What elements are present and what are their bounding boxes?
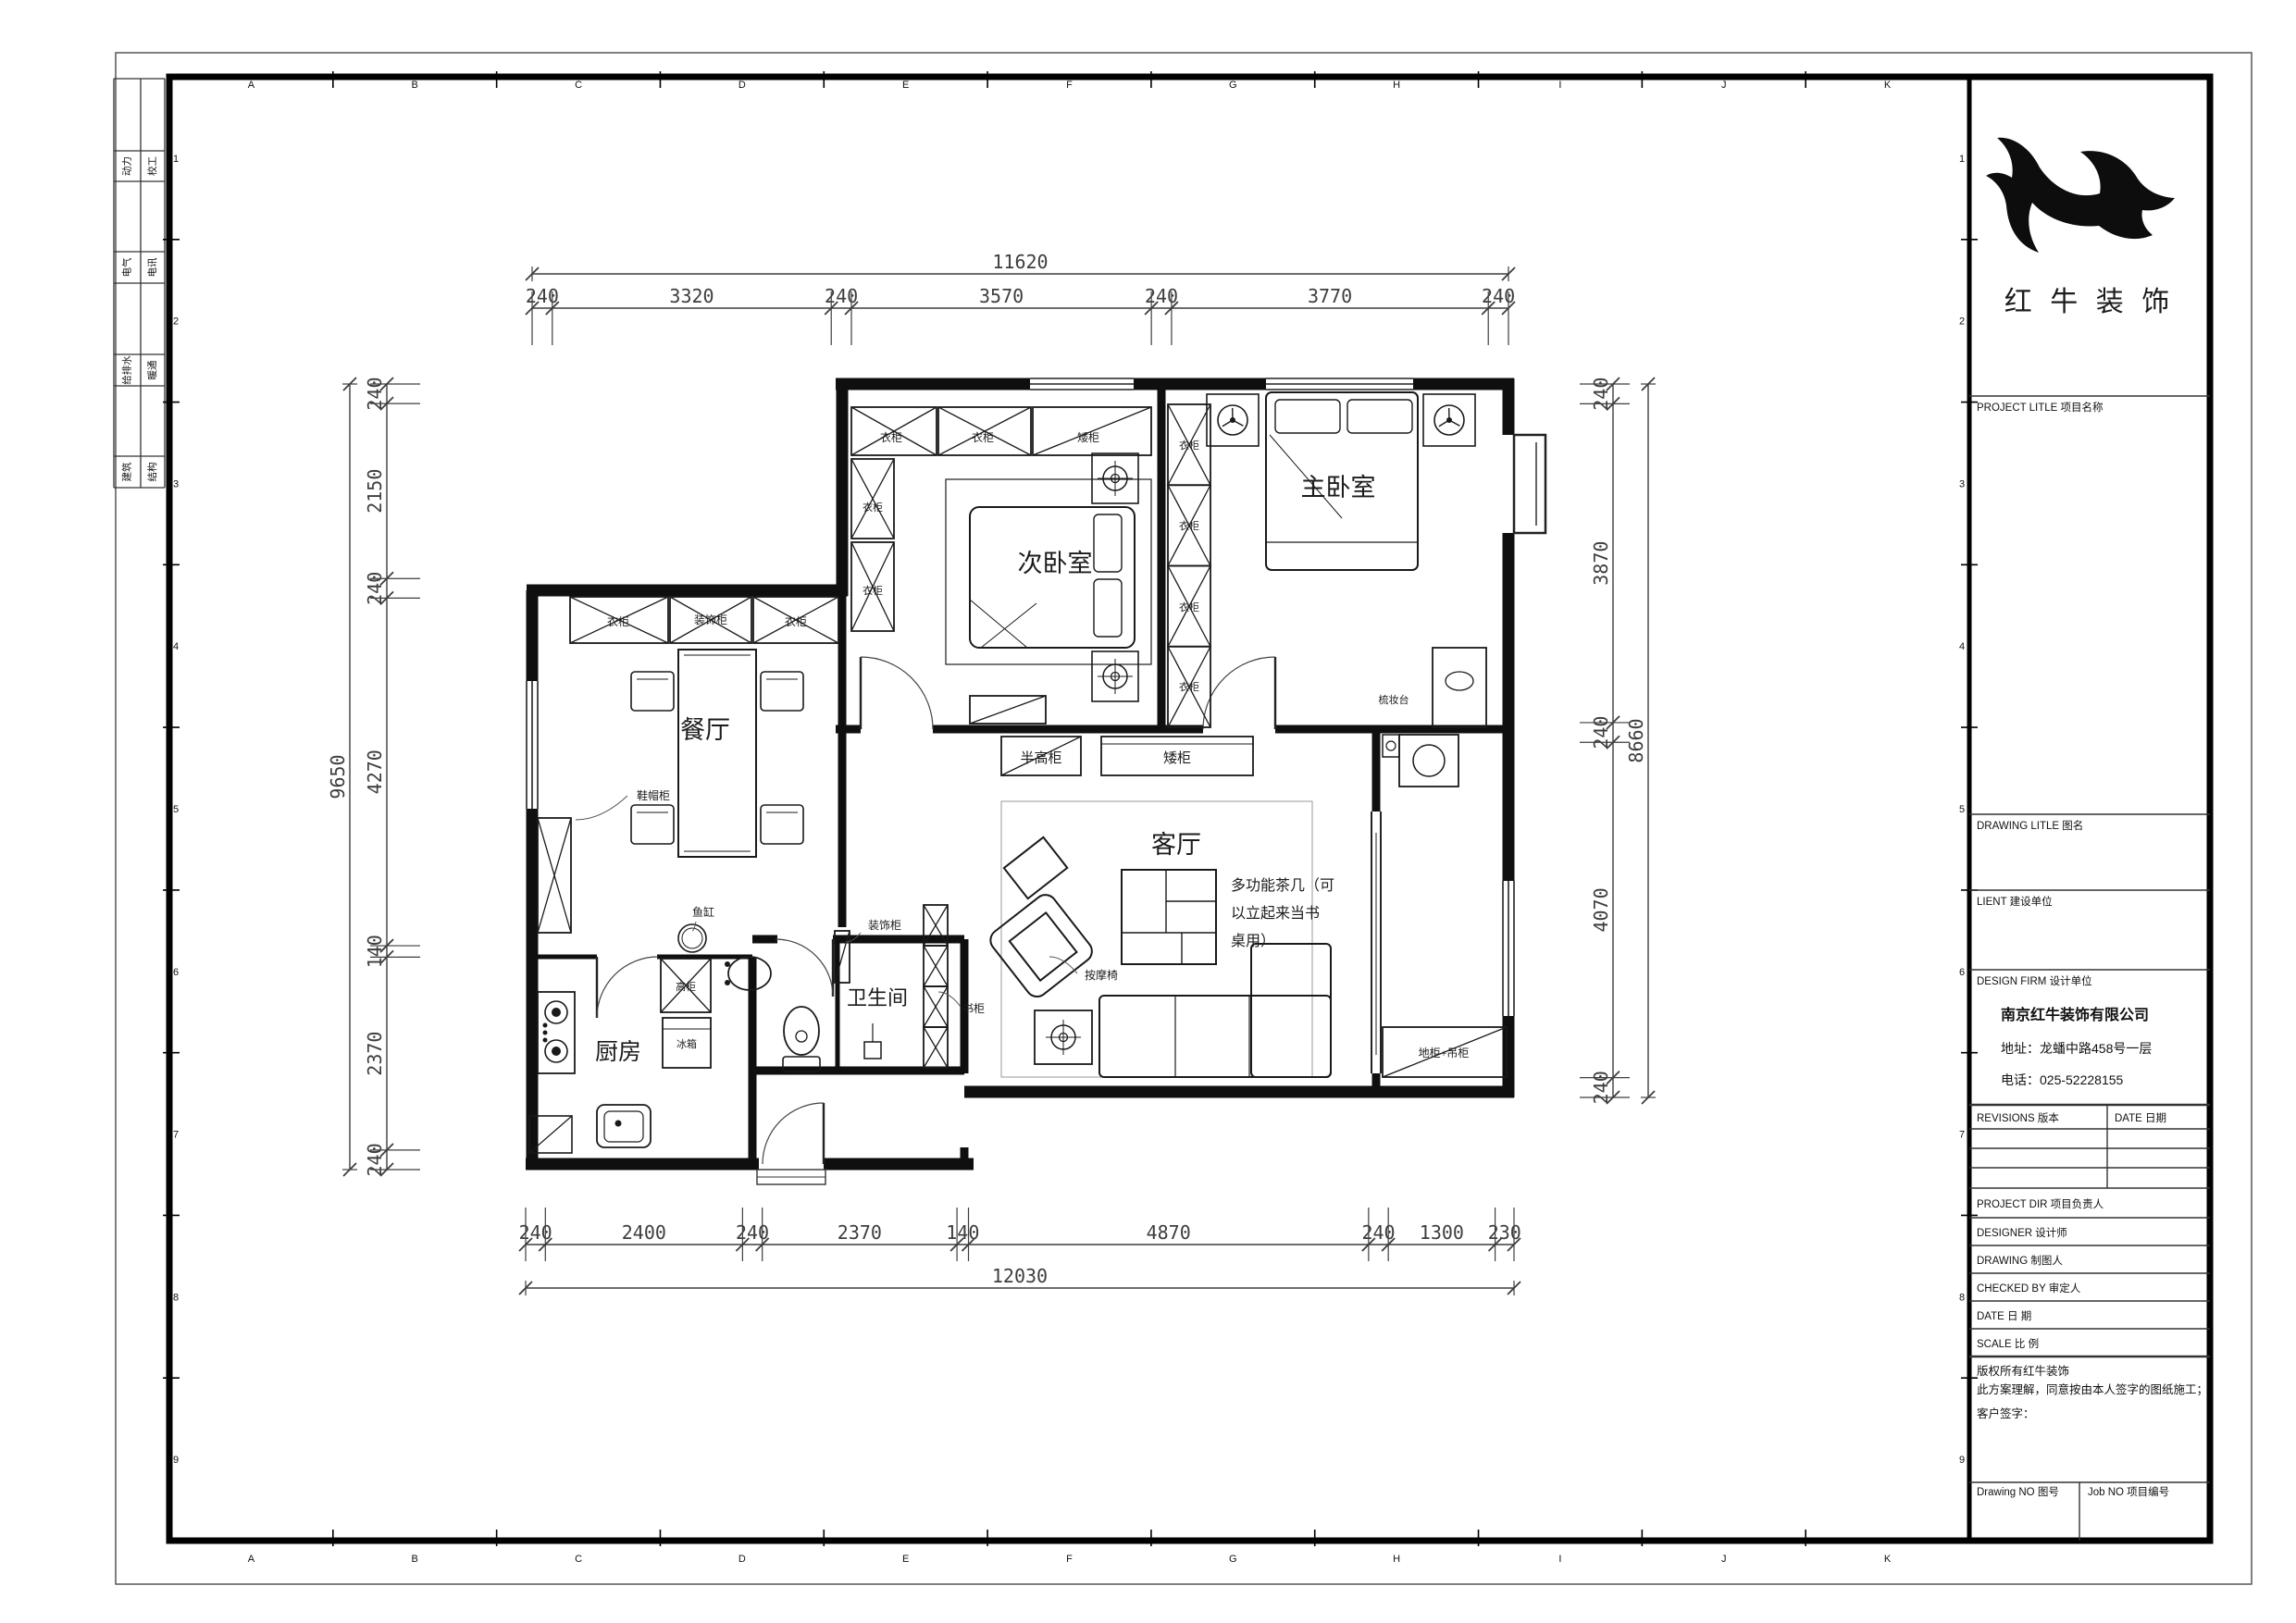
design-firm-label: DESIGN FIRM 设计单位 <box>1977 974 2092 987</box>
kitchen-sink <box>604 1111 643 1142</box>
door-kitchen-swing <box>597 957 658 1018</box>
furniture-label: 衣柜 <box>785 614 807 628</box>
room-label: 餐厅 <box>680 716 730 744</box>
copyright-line1: 版权所有红牛装饰 <box>1977 1364 2069 1378</box>
grid-letter: G <box>1229 80 1237 91</box>
grid-letter: H <box>1393 1554 1400 1565</box>
company-name: 南京红牛装饰有限公司 <box>2001 1006 2149 1023</box>
discipline-label: 电气 <box>120 257 132 277</box>
dim-value: 4070 <box>1590 887 1612 932</box>
grid-letter: A <box>248 1554 255 1565</box>
grid-letter: F <box>1066 80 1073 91</box>
bay-window <box>1514 435 1545 533</box>
discipline-label: 建筑 <box>120 462 132 481</box>
furniture-label: 多功能茶几（可 <box>1231 877 1334 894</box>
dim-value: 3320 <box>669 285 714 307</box>
grid-number: 8 <box>1959 1292 1965 1303</box>
grid-number: 9 <box>173 1455 179 1466</box>
grid-letter: C <box>575 1554 582 1565</box>
dressing-table <box>1433 648 1486 727</box>
chair <box>631 805 674 844</box>
dim-value: 240 <box>1482 285 1515 307</box>
dim-value: 240 <box>1590 378 1612 411</box>
grid-letter: F <box>1066 1554 1073 1565</box>
discipline-label: 给排水 <box>120 355 132 385</box>
furniture-label: 装饰柜 <box>694 613 727 626</box>
dim-value: 240 <box>364 377 386 410</box>
grid-letter: J <box>1721 1554 1727 1565</box>
grid-letter: I <box>1558 1554 1561 1565</box>
copyright-line2: 此方案理解，同意按由本人签字的图纸施工； <box>1977 1382 2208 1396</box>
furniture-label: 衣柜 <box>1179 439 1199 452</box>
date-header-label: DATE 日期 <box>2115 1112 2166 1124</box>
sofa-chaise <box>1251 944 1331 1077</box>
washing-machine <box>1399 735 1458 787</box>
door-bathroom-swing <box>776 939 833 997</box>
title-block: 红 牛 装 饰 PROJECT LITLE 项目名称 DRAWING LITLE… <box>1969 77 2210 1541</box>
dim-value: 140 <box>946 1221 979 1244</box>
scale-label: SCALE 比 例 <box>1977 1337 2039 1350</box>
discipline-label: 校工 <box>146 156 158 176</box>
furniture-label: 衣柜 <box>972 430 994 444</box>
plan-annotations: 次卧室主卧室餐厅客厅厨房卫生间衣柜衣柜矮柜衣柜衣柜衣柜衣柜衣柜衣柜衣柜装饰柜衣柜… <box>576 430 1469 1065</box>
furniture-label: 按摩椅 <box>1085 968 1118 982</box>
project-dir-label: PROJECT DIR 项目负责人 <box>1977 1197 2104 1210</box>
dim-value: 12030 <box>992 1265 1048 1287</box>
furniture-label: 以立起来当书 <box>1231 905 1320 922</box>
grid-letter: D <box>738 80 746 91</box>
grid-number: 2 <box>173 316 179 328</box>
furniture-label: 衣柜 <box>863 501 883 514</box>
faucet <box>725 961 730 967</box>
room-label: 客厅 <box>1151 831 1201 859</box>
furniture-label: 矮柜 <box>1077 431 1099 444</box>
furniture-label: 高柜 <box>676 980 696 993</box>
grid-number: 6 <box>1959 967 1965 978</box>
grid-letter: E <box>902 80 909 91</box>
furniture-label: 冰箱 <box>676 1037 697 1050</box>
balcony-sink <box>1383 735 1399 757</box>
company-phone: 电话：025-52228155 <box>2001 1072 2124 1087</box>
dim-value: 240 <box>825 285 858 307</box>
grid-letter: B <box>412 1554 418 1565</box>
burner <box>552 1008 561 1017</box>
furniture-label: 装饰柜 <box>868 919 901 932</box>
massage-chair <box>987 890 1097 1000</box>
drawing-no-label: Drawing NO 图号 <box>1977 1486 2059 1498</box>
grid-letter: K <box>1884 80 1892 91</box>
dim-value: 230 <box>1488 1221 1521 1244</box>
grid-number: 5 <box>173 804 179 815</box>
pillow <box>1275 400 1340 433</box>
logo-text: 红 牛 装 饰 <box>2004 287 2176 317</box>
grid-letter: J <box>1721 80 1727 91</box>
client-label: LIENT 建设单位 <box>1977 895 2053 908</box>
discipline-label: 结构 <box>146 463 158 482</box>
bed-secondary <box>970 507 1135 648</box>
room-label: 主卧室 <box>1301 474 1376 502</box>
grid-letter: C <box>575 80 582 91</box>
discipline-label: 暖通 <box>146 360 158 379</box>
massage-chair <box>1010 912 1077 980</box>
door-master-bedroom-swing <box>1203 657 1275 729</box>
dressing-mirror <box>1446 672 1473 690</box>
grid-number: 3 <box>1959 478 1965 489</box>
furniture-label: 衣柜 <box>863 584 883 597</box>
blanket-fold <box>981 603 1036 648</box>
chair <box>761 805 803 844</box>
grid-number: 1 <box>173 154 179 165</box>
pillow <box>1347 400 1412 433</box>
checked-by-label: CHECKED BY 审定人 <box>1977 1282 2081 1295</box>
pillow <box>1094 579 1122 637</box>
dim-value: 240 <box>526 285 559 307</box>
grid-reference: AABBCCDDEEFFGGHHIIJJKK112233445566778899 <box>163 71 1978 1565</box>
dim-value: 9650 <box>327 754 349 799</box>
grid-number: 4 <box>1959 641 1965 652</box>
grid-number: 8 <box>173 1292 179 1303</box>
grid-number: 6 <box>173 967 179 978</box>
grid-letter: G <box>1229 1554 1237 1565</box>
customer-sign-label: 客户签字： <box>1977 1406 2035 1420</box>
dim-value: 140 <box>364 935 386 968</box>
furniture-label: 鞋帽柜 <box>637 788 670 802</box>
job-no-label: Job NO 项目编号 <box>2088 1485 2169 1498</box>
grid-number: 2 <box>1959 316 1965 328</box>
massage-chair <box>1004 837 1067 898</box>
faucet <box>615 1121 622 1127</box>
stove-knob <box>543 1031 548 1035</box>
grid-letter: K <box>1884 1554 1892 1565</box>
toilet <box>796 1031 807 1042</box>
coffee-table <box>1122 870 1216 964</box>
designer-label: DESIGNER 设计师 <box>1977 1227 2067 1239</box>
furniture-label: 衣柜 <box>880 430 902 444</box>
discipline-label: 动力 <box>120 156 132 176</box>
drafter-label: DRAWING 制图人 <box>1977 1255 2063 1267</box>
grid-letter: B <box>412 80 418 91</box>
dim-value: 3570 <box>979 285 1024 307</box>
discipline-label: 电讯 <box>146 257 158 277</box>
dim-value: 2370 <box>364 1032 386 1076</box>
dim-value: 2400 <box>622 1221 666 1244</box>
furniture-label: 衣柜 <box>1179 680 1199 693</box>
dim-value: 11620 <box>992 251 1048 273</box>
room-label: 厨房 <box>595 1039 641 1065</box>
fan-lamp-symbol <box>1233 420 1243 426</box>
grid-number: 9 <box>1959 1455 1965 1466</box>
dim-value: 4870 <box>1147 1221 1191 1244</box>
logo-mark <box>1986 138 2175 253</box>
dim-value: 3870 <box>1590 541 1612 586</box>
dim-value: 2150 <box>364 469 386 514</box>
date-label: DATE 日 期 <box>1977 1310 2031 1322</box>
grid-number: 7 <box>173 1130 179 1141</box>
low-cabinet <box>970 696 1046 724</box>
furniture-label: 鱼缸 <box>692 905 714 919</box>
dim-value: 240 <box>1590 716 1612 750</box>
discipline-strip: 动力校工电气电讯给排水暖通建筑结构 <box>114 79 165 488</box>
dim-value: 240 <box>364 1143 386 1176</box>
dim-value: 240 <box>736 1221 769 1244</box>
sheet-borders <box>116 53 2252 1584</box>
dim-value: 2370 <box>838 1221 882 1244</box>
chair <box>631 672 674 711</box>
drawing-title-label: DRAWING LITLE 图名 <box>1977 819 2083 832</box>
dim-value: 240 <box>1361 1221 1395 1244</box>
dim-value: 1300 <box>1420 1221 1464 1244</box>
dim-value: 240 <box>364 572 386 605</box>
fan-lamp-symbol <box>1439 420 1449 427</box>
company-address: 地址：龙蟠中路458号一层 <box>2001 1041 2152 1056</box>
furniture-label: 半高柜 <box>1020 750 1061 766</box>
dim-value: 8660 <box>1625 718 1647 762</box>
label-leader <box>576 796 627 820</box>
pillow <box>1094 514 1122 572</box>
sofa <box>1099 996 1331 1077</box>
grid-number: 4 <box>173 641 179 652</box>
furniture-label: 衣柜 <box>1179 519 1199 532</box>
grid-letter: E <box>902 1554 909 1565</box>
label-leader <box>938 992 961 1007</box>
grid-number: 3 <box>173 478 179 489</box>
grid-letter: D <box>738 1554 746 1565</box>
dim-value: 240 <box>1590 1071 1612 1104</box>
project-title-label: PROJECT LITLE 项目名称 <box>1977 401 2104 414</box>
floor-plan-canvas: 动力校工电气电讯给排水暖通建筑结构 AABBCCDDEEFFGGHHIIJJKK… <box>0 0 2296 1623</box>
fan-lamp-symbol <box>1449 420 1459 426</box>
dim-value: 240 <box>1145 285 1178 307</box>
floor-drain <box>864 1042 881 1059</box>
door-entry-swing <box>763 1103 824 1164</box>
grid-letter: H <box>1393 80 1400 91</box>
grid-letter: I <box>1558 80 1561 91</box>
dim-value: 240 <box>519 1221 552 1244</box>
room-label: 卫生间 <box>847 986 908 1010</box>
revisions-label: REVISIONS 版本 <box>1977 1111 2059 1124</box>
door-secondary-bedroom-swing <box>861 657 933 729</box>
logo: 红 牛 装 饰 <box>1986 138 2175 317</box>
stove-knob <box>543 1023 548 1028</box>
furniture-label: 书柜 <box>962 1002 985 1015</box>
faucet <box>725 980 730 985</box>
chair <box>761 672 803 711</box>
dining-table <box>678 650 756 857</box>
furniture-label: 衣柜 <box>1179 601 1199 613</box>
grid-number: 1 <box>1959 154 1965 165</box>
room-label: 次卧室 <box>1018 550 1093 577</box>
grid-letter: A <box>248 80 255 91</box>
fan-lamp-symbol <box>1222 420 1233 427</box>
drawing-sheet: 动力校工电气电讯给排水暖通建筑结构 AABBCCDDEEFFGGHHIIJJKK… <box>0 0 2296 1623</box>
balcony-sink <box>1386 741 1396 750</box>
burner <box>552 1047 561 1056</box>
furniture-label: 地柜+吊柜 <box>1419 1047 1470 1059</box>
label-leader <box>692 922 696 931</box>
stove-knob <box>543 1038 548 1043</box>
furniture-label: 桌用） <box>1231 933 1275 949</box>
furniture-label: 衣柜 <box>607 614 629 628</box>
grid-number: 7 <box>1959 1130 1965 1141</box>
dim-value: 4270 <box>364 750 386 794</box>
blanket-fold <box>970 600 1027 648</box>
furniture-label: 矮柜 <box>1163 750 1191 766</box>
washing-machine <box>1413 745 1445 776</box>
furniture-label: 梳妆台 <box>1379 693 1409 706</box>
dim-value: 3770 <box>1308 285 1352 307</box>
grid-number: 5 <box>1959 804 1965 815</box>
